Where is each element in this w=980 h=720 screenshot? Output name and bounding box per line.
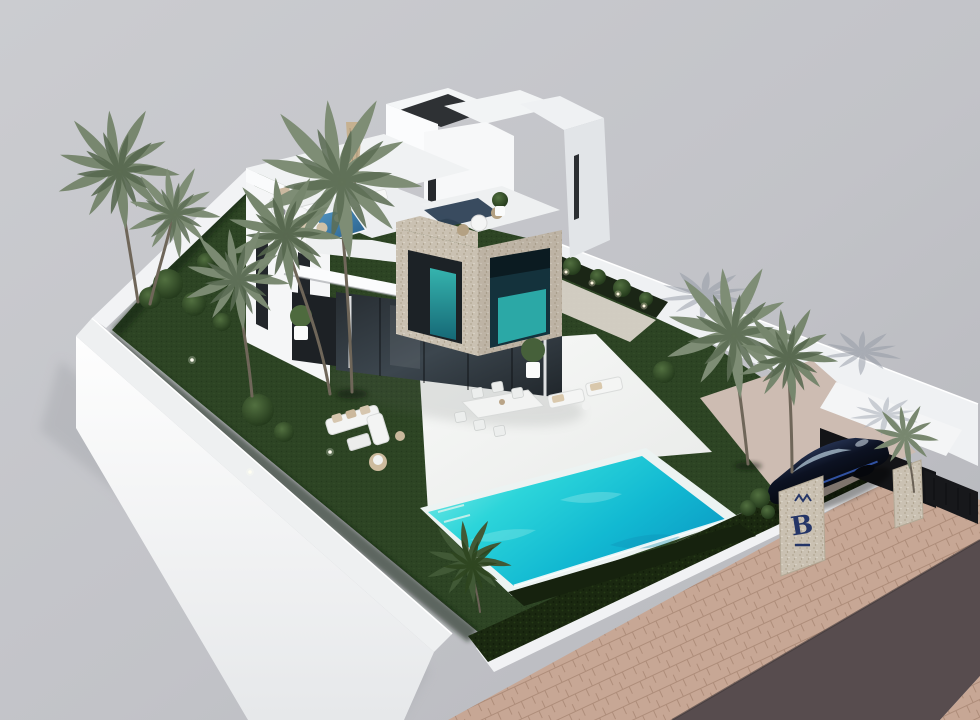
bistro-chair <box>457 224 469 236</box>
chair <box>454 411 467 423</box>
centerpiece <box>499 399 505 405</box>
bistro-table <box>471 215 487 231</box>
rear-box-window-slit <box>574 154 579 220</box>
render-canvas: B <box>0 0 980 720</box>
light <box>188 356 196 364</box>
chair <box>471 387 484 399</box>
light <box>589 280 596 287</box>
teal-reflection <box>430 268 456 340</box>
plant-pot <box>294 326 308 340</box>
light <box>326 448 334 456</box>
potted-plant <box>492 192 508 208</box>
rear-box-right-face <box>564 118 610 258</box>
bush <box>242 394 274 426</box>
villa-render: B <box>0 0 980 720</box>
gate-pillar <box>893 460 923 528</box>
bush <box>740 500 756 516</box>
plant-pot <box>495 206 505 216</box>
bush <box>653 361 675 383</box>
bush <box>274 422 294 442</box>
basket-cushion <box>373 455 383 465</box>
light <box>246 468 254 476</box>
side-stool <box>395 431 405 441</box>
side-table <box>582 402 590 410</box>
sign-letter: B <box>789 509 815 542</box>
chair <box>473 419 486 431</box>
bush <box>213 313 231 331</box>
light <box>641 303 648 310</box>
tall-plant <box>521 338 545 362</box>
chair <box>491 381 504 393</box>
light <box>615 291 622 298</box>
chair <box>511 387 524 399</box>
plant-pot <box>526 362 540 378</box>
bush <box>761 505 775 519</box>
light <box>563 269 570 276</box>
entrance-pillar-sign: B <box>779 476 825 576</box>
chair <box>493 425 506 437</box>
